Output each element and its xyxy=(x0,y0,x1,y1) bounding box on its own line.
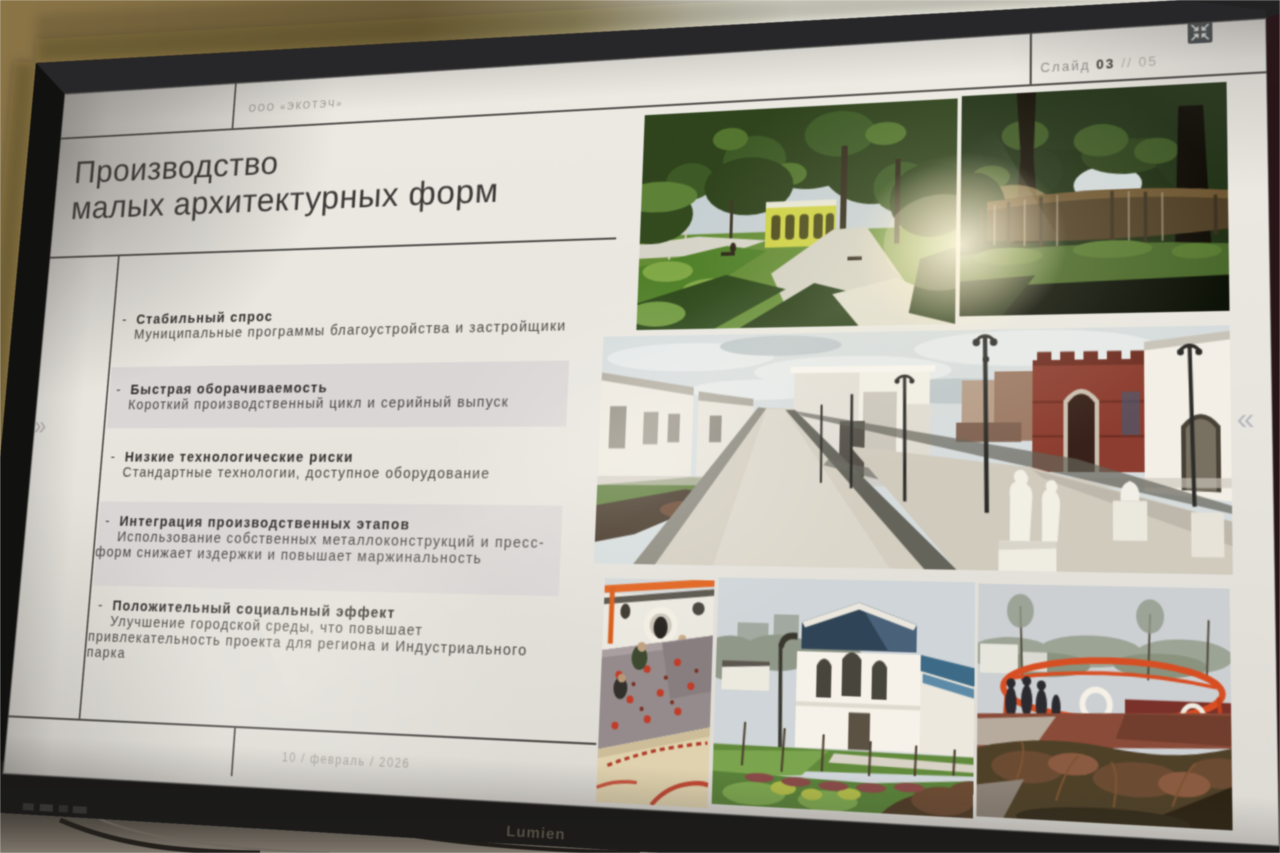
svg-text:Lumien: Lumien xyxy=(506,823,566,843)
